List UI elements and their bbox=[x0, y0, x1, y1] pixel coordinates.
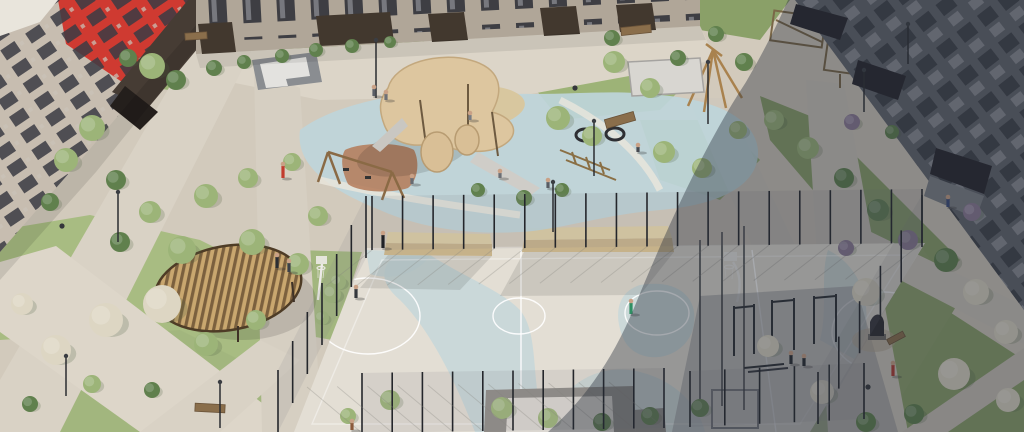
tree-highlight bbox=[81, 117, 95, 131]
tree-highlight bbox=[23, 397, 32, 406]
tree-highlight bbox=[92, 306, 111, 325]
play-pod-large bbox=[421, 132, 453, 172]
tree-highlight bbox=[385, 37, 392, 44]
tree-highlight bbox=[248, 312, 259, 323]
tree-highlight bbox=[146, 288, 167, 309]
tree-highlight bbox=[671, 51, 680, 60]
tree-highlight bbox=[310, 208, 321, 219]
person-head bbox=[275, 253, 280, 258]
tree-highlight bbox=[120, 51, 130, 61]
tree-highlight bbox=[141, 55, 155, 69]
tree-highlight bbox=[346, 40, 354, 48]
tree-highlight bbox=[276, 50, 284, 58]
person-head bbox=[381, 231, 386, 236]
trash-bin bbox=[572, 85, 577, 90]
tree-highlight bbox=[556, 184, 564, 192]
tree-highlight bbox=[605, 31, 614, 40]
tree-highlight bbox=[240, 170, 251, 181]
tree-highlight bbox=[655, 143, 667, 155]
trash-bin bbox=[59, 223, 64, 228]
person-head bbox=[384, 90, 389, 95]
tree-highlight bbox=[642, 80, 653, 91]
pole-lamp bbox=[551, 180, 555, 184]
person-head bbox=[498, 169, 503, 174]
tree-highlight bbox=[170, 238, 185, 253]
tree-highlight bbox=[472, 184, 480, 192]
courtyard-render bbox=[0, 0, 1024, 432]
pole-lamp bbox=[706, 60, 710, 64]
pole-lamp bbox=[592, 119, 596, 123]
person-head bbox=[287, 259, 292, 264]
tree-highlight bbox=[310, 44, 318, 52]
tree-highlight bbox=[709, 27, 718, 36]
flat-pavilion bbox=[628, 58, 704, 96]
person-head bbox=[468, 111, 473, 116]
person-head bbox=[372, 85, 377, 90]
bench bbox=[185, 32, 207, 41]
tree-highlight bbox=[112, 234, 123, 245]
play-pod-small bbox=[455, 125, 479, 155]
swing-seat-1 bbox=[343, 168, 349, 171]
tree-highlight bbox=[548, 108, 561, 121]
person-head bbox=[350, 419, 355, 424]
tree-highlight bbox=[238, 56, 246, 64]
tree-highlight bbox=[284, 155, 294, 165]
swing-seat-2 bbox=[365, 176, 371, 179]
tree-highlight bbox=[196, 186, 209, 199]
person-head bbox=[629, 299, 634, 304]
scene-svg bbox=[0, 0, 1024, 432]
tree-highlight bbox=[43, 338, 60, 355]
tree-highlight bbox=[584, 128, 595, 139]
tree-highlight bbox=[241, 231, 255, 245]
tree-highlight bbox=[196, 334, 209, 347]
pole-lamp bbox=[218, 380, 222, 384]
bench-seat bbox=[185, 32, 207, 41]
tree-highlight bbox=[145, 383, 154, 392]
tree-highlight bbox=[42, 195, 52, 205]
tree-highlight bbox=[141, 203, 153, 215]
pole-lamp bbox=[116, 190, 120, 194]
tree-highlight bbox=[84, 377, 94, 387]
pole-lamp bbox=[374, 38, 378, 42]
person-head bbox=[410, 174, 415, 179]
tree-highlight bbox=[736, 55, 746, 65]
person-head bbox=[546, 178, 551, 183]
person-head bbox=[281, 162, 286, 167]
pole-lamp bbox=[64, 354, 68, 358]
tree-highlight bbox=[56, 150, 69, 163]
tree-highlight bbox=[605, 53, 617, 65]
tree-highlight bbox=[108, 172, 119, 183]
tree-highlight bbox=[207, 61, 216, 70]
tree-highlight bbox=[168, 72, 179, 83]
person-head bbox=[636, 143, 641, 148]
tree-highlight bbox=[13, 295, 25, 307]
person-head bbox=[354, 285, 359, 290]
